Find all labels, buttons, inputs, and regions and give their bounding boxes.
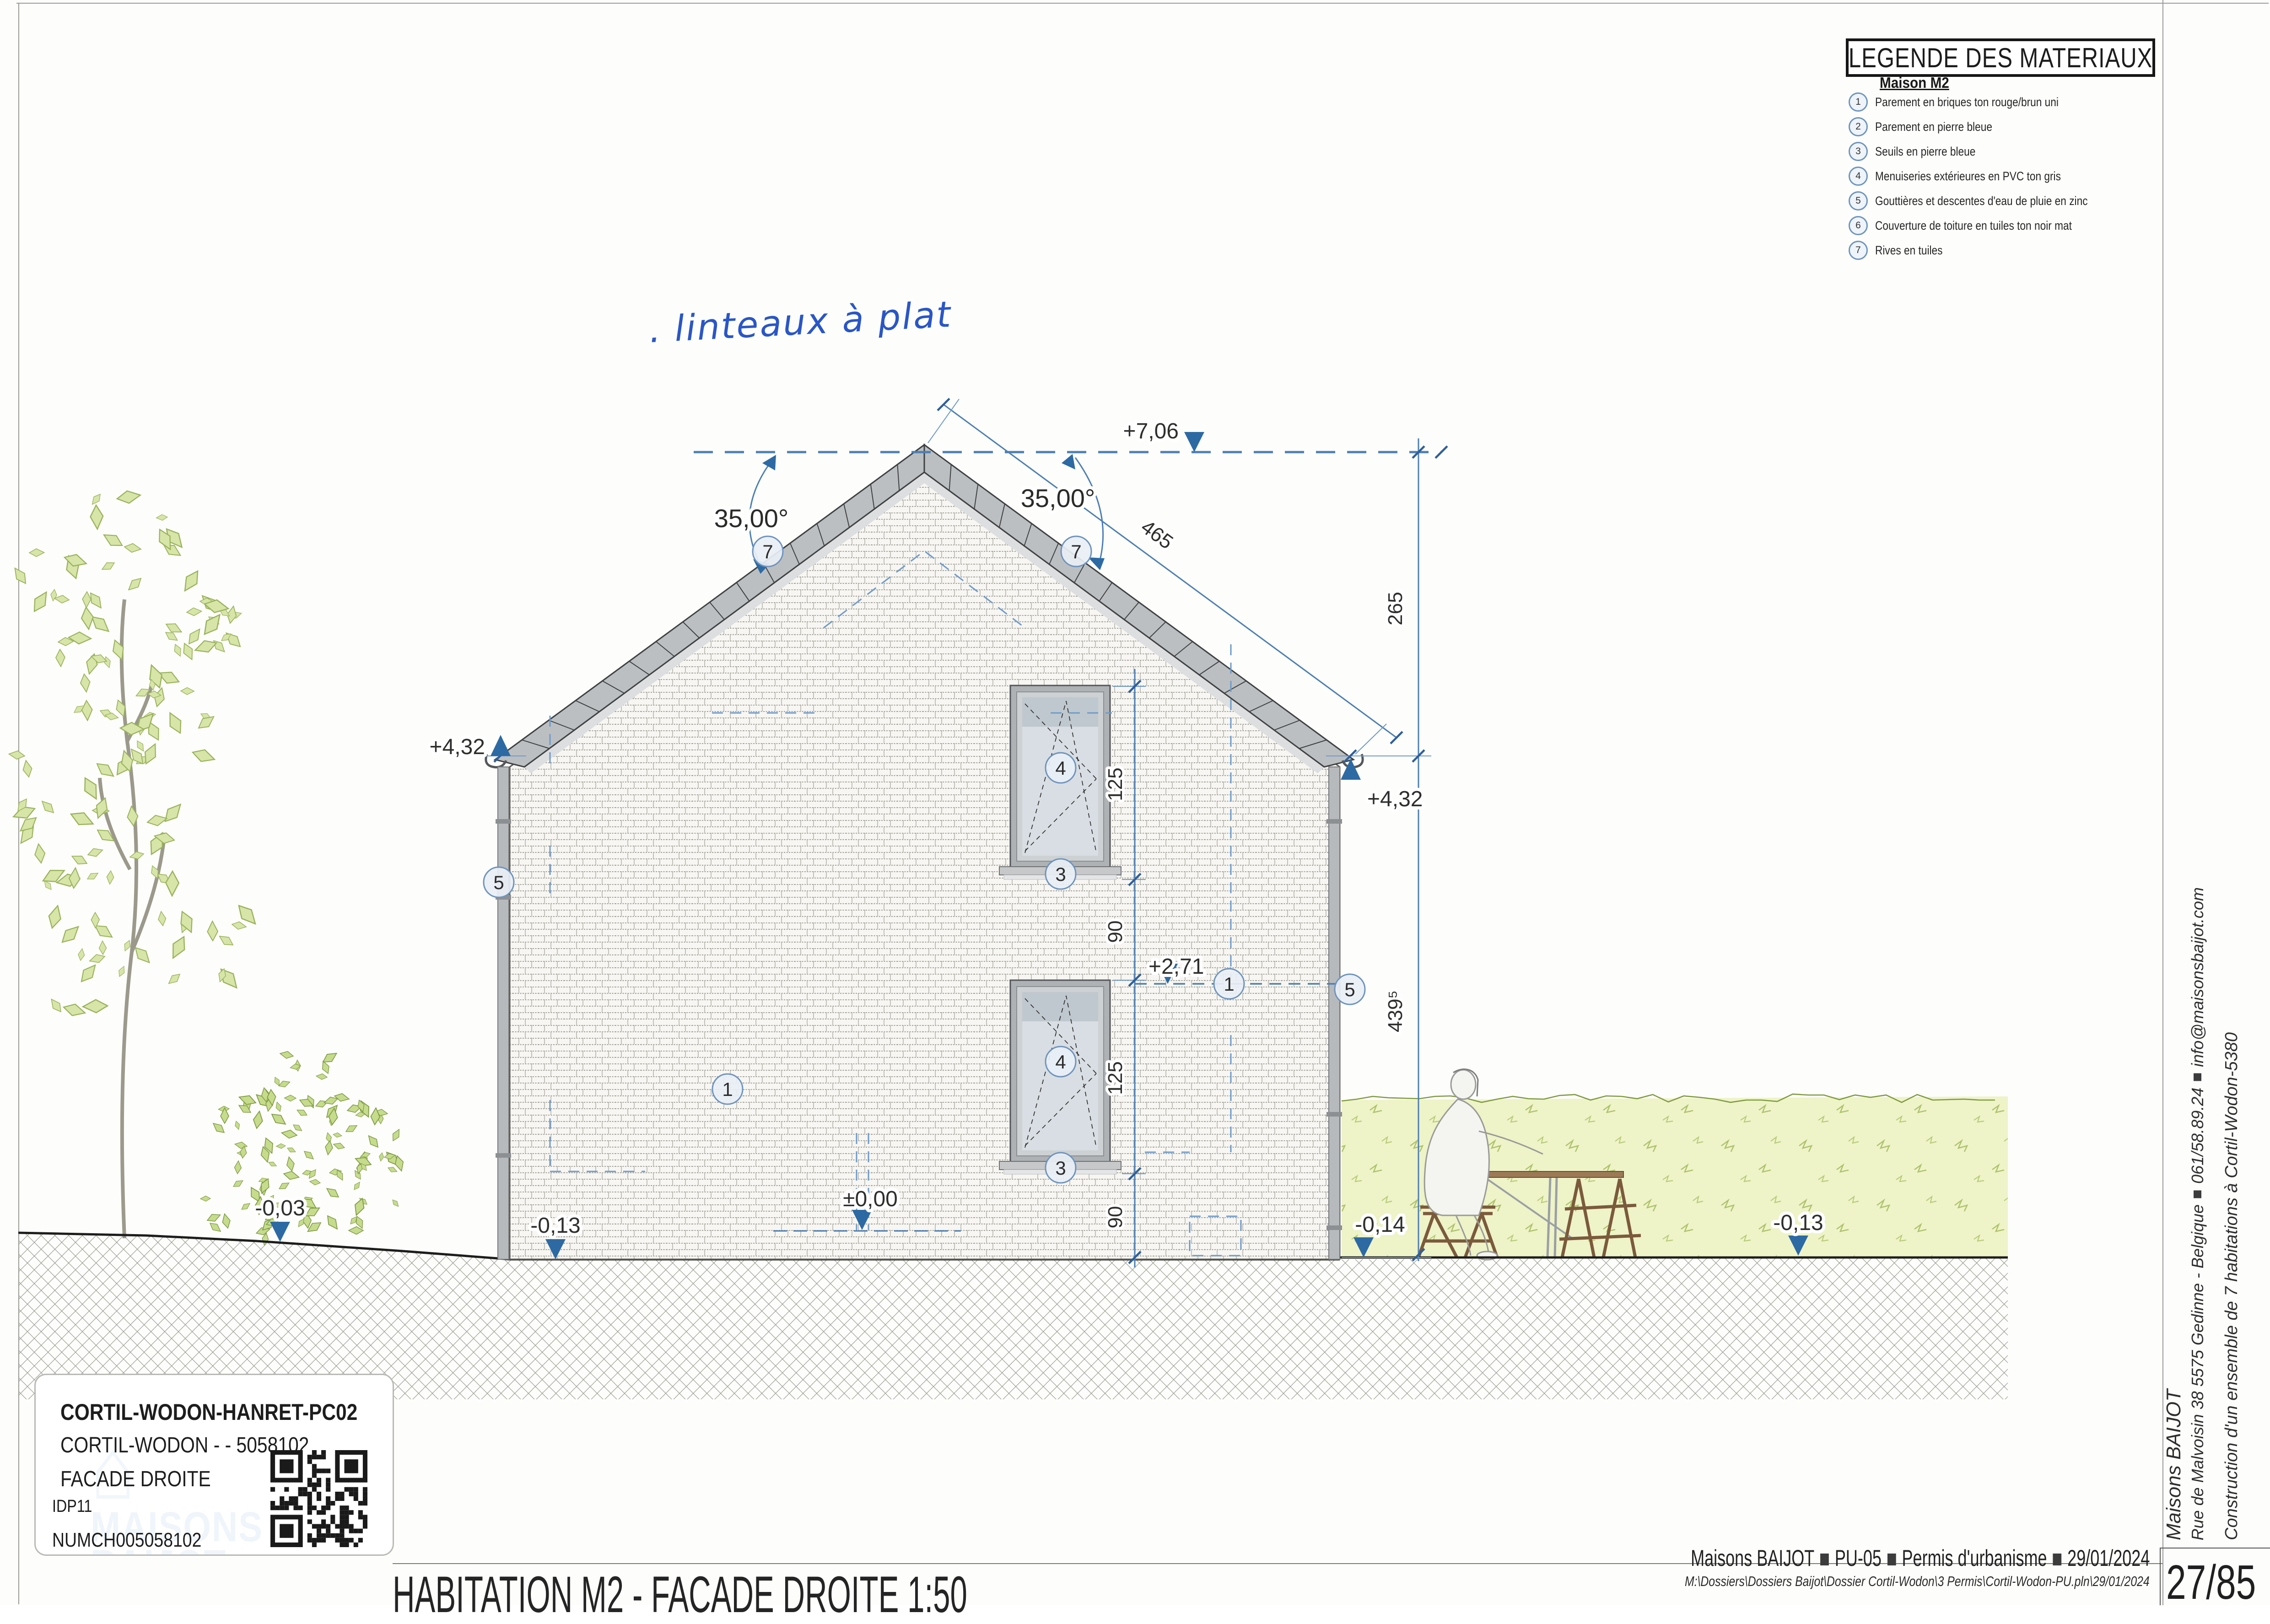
level-m003-triangle bbox=[270, 1222, 290, 1242]
svg-text:3: 3 bbox=[1055, 1157, 1066, 1179]
footer-date: 29/01/2024 bbox=[2067, 1545, 2150, 1571]
level-m013-right: -0,13 bbox=[1773, 1211, 1823, 1235]
level-floor: +2,71 bbox=[1148, 955, 1204, 979]
dim-roof-height: 265 bbox=[1384, 592, 1407, 625]
file-path: M:\Dossiers\Dossiers Baijot\Dossier Cort… bbox=[1685, 1573, 2150, 1590]
num-code: NUMCH005058102 bbox=[52, 1529, 201, 1552]
marker-circle-3: 3 bbox=[1046, 1153, 1076, 1183]
separator-square bbox=[2053, 1554, 2061, 1565]
svg-text:3: 3 bbox=[1055, 863, 1066, 885]
legend-num-icon: 4 bbox=[1849, 167, 1868, 186]
level-ridge: +7,06 bbox=[1123, 419, 1179, 443]
svg-text:7: 7 bbox=[1071, 541, 1081, 562]
marker-circle-3: 3 bbox=[1046, 859, 1076, 889]
legend-item-4: 4 Menuiseries extérieures en PVC ton gri… bbox=[1849, 164, 2096, 189]
handwritten-note: . linteaux à plat bbox=[648, 294, 953, 351]
svg-text:4: 4 bbox=[1055, 1051, 1066, 1073]
legend-item-1: 1 Parement en briques ton rouge/brun uni bbox=[1849, 90, 2093, 114]
level-eaves-right: +4,32 bbox=[1367, 787, 1423, 811]
legend-num-icon: 6 bbox=[1849, 216, 1868, 235]
level-ridge-triangle bbox=[1184, 432, 1204, 452]
level-zero: ±0,00 bbox=[843, 1187, 898, 1211]
legend-num-icon: 5 bbox=[1849, 191, 1868, 210]
dim-spacer-upper: 90 bbox=[1104, 921, 1127, 943]
dim-window-upper: 125 bbox=[1104, 767, 1127, 801]
level-eaves-left: +4,32 bbox=[430, 735, 485, 759]
footer-doc-type: Permis d'urbanisme bbox=[1902, 1545, 2047, 1571]
sheet-title: HABITATION M2 - FACADE DROITE 1:50 bbox=[393, 1565, 967, 1624]
downspout-left bbox=[496, 767, 511, 1259]
project-code: CORTIL-WODON-HANRET-PC02 bbox=[60, 1399, 357, 1425]
separator-square bbox=[2194, 1073, 2202, 1081]
sheet-name: FACADE DROITE bbox=[60, 1467, 211, 1492]
legend-title-box: LEGENDE DES MATERIAUX bbox=[1846, 38, 2155, 77]
legend-num-icon: 1 bbox=[1849, 92, 1868, 112]
legend-item-3: 3 Seuils en pierre bleue bbox=[1849, 139, 1995, 164]
separator-square bbox=[1887, 1554, 1896, 1565]
marker-circle-1: 1 bbox=[712, 1074, 743, 1104]
dim-window-lower: 125 bbox=[1104, 1061, 1127, 1095]
idp-code: IDP11 bbox=[52, 1497, 92, 1516]
legend-item-6: 6 Couverture de toiture en tuiles ton no… bbox=[1849, 213, 2109, 238]
qr-code bbox=[270, 1450, 367, 1547]
level-m003: -0,03 bbox=[255, 1196, 305, 1220]
legend-item-7: 7 Rives en tuiles bbox=[1849, 238, 1956, 263]
side-company: Maisons BAIJOT bbox=[2162, 1389, 2185, 1540]
svg-text:1: 1 bbox=[722, 1079, 733, 1100]
separator-square bbox=[2194, 1190, 2202, 1198]
separator-square bbox=[1820, 1554, 1829, 1565]
marker-circle-1: 1 bbox=[1214, 969, 1244, 999]
legend-num-icon: 7 bbox=[1849, 241, 1868, 260]
dim-wall-height: 439⁵ bbox=[1384, 990, 1407, 1032]
svg-text:5: 5 bbox=[1344, 979, 1355, 1000]
marker-circle-5: 5 bbox=[1335, 974, 1365, 1004]
legend-item-5: 5 Gouttières et descentes d'eau de pluie… bbox=[1849, 189, 2128, 213]
marker-circle-5: 5 bbox=[484, 867, 514, 897]
footer-code: PU-05 bbox=[1835, 1545, 1882, 1571]
svg-text:7: 7 bbox=[762, 541, 773, 562]
footer-company: Maisons BAIJOT bbox=[1691, 1545, 1814, 1571]
svg-text:4: 4 bbox=[1055, 757, 1066, 779]
footer-meta: Maisons BAIJOTPU-05Permis d'urbanisme29/… bbox=[1691, 1545, 2150, 1571]
title-block-card: ⌂ MAISONS BAIJOT CORTIL-WODON-HANRET-PC0… bbox=[34, 1374, 394, 1556]
marker-circle-4: 4 bbox=[1046, 753, 1076, 783]
level-eaves-left-triangle bbox=[491, 735, 511, 756]
level-m013-left: -0,13 bbox=[530, 1214, 580, 1238]
legend-num-icon: 2 bbox=[1849, 117, 1868, 136]
brick-wall bbox=[510, 464, 1340, 1259]
svg-text:5: 5 bbox=[493, 872, 504, 893]
legend-title: LEGENDE DES MATERIAUX bbox=[1849, 42, 2152, 74]
side-address: Rue de Malvoisin 38 5575 Gedinne - Belgi… bbox=[2188, 887, 2207, 1540]
legend-item-2: 2 Parement en pierre bleue bbox=[1849, 114, 2015, 139]
side-project: Construction d'un ensemble de 7 habitati… bbox=[2222, 1032, 2242, 1540]
marker-circle-7: 7 bbox=[753, 536, 783, 567]
marker-circle-7: 7 bbox=[1061, 536, 1091, 567]
page-number: 27/85 bbox=[2166, 1555, 2256, 1610]
downspout-right bbox=[1326, 767, 1342, 1259]
svg-text:1: 1 bbox=[1224, 973, 1234, 995]
legend-subtitle: Maison M2 bbox=[1880, 74, 1949, 92]
dim-roof-slope: 465 bbox=[1137, 516, 1177, 554]
roof-angle-left: 35,00° bbox=[714, 504, 789, 533]
drawing-sheet: +7,06 +4,32 +4,32 +2,71 ±0,00 -0,03 -0,1… bbox=[0, 0, 2270, 1605]
legend-num-icon: 3 bbox=[1849, 142, 1868, 161]
marker-circle-4: 4 bbox=[1046, 1047, 1076, 1077]
level-m014: -0,14 bbox=[1355, 1213, 1405, 1237]
roof-angle-right: 35,00° bbox=[1021, 484, 1095, 513]
dim-spacer-lower: 90 bbox=[1104, 1206, 1127, 1229]
